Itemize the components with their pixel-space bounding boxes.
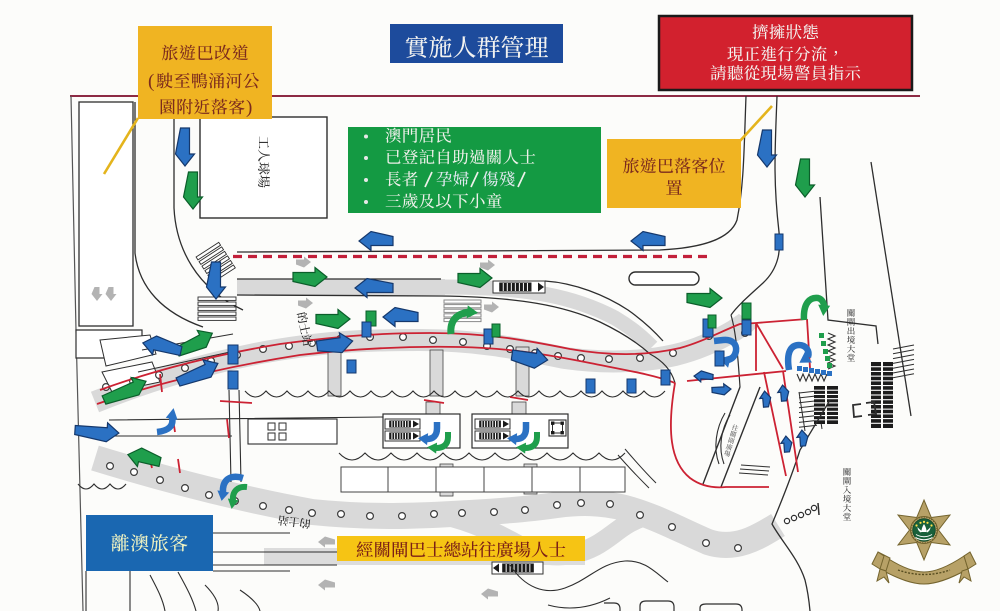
svg-text:): ) bbox=[246, 97, 252, 118]
svg-text:(: ( bbox=[148, 71, 154, 92]
